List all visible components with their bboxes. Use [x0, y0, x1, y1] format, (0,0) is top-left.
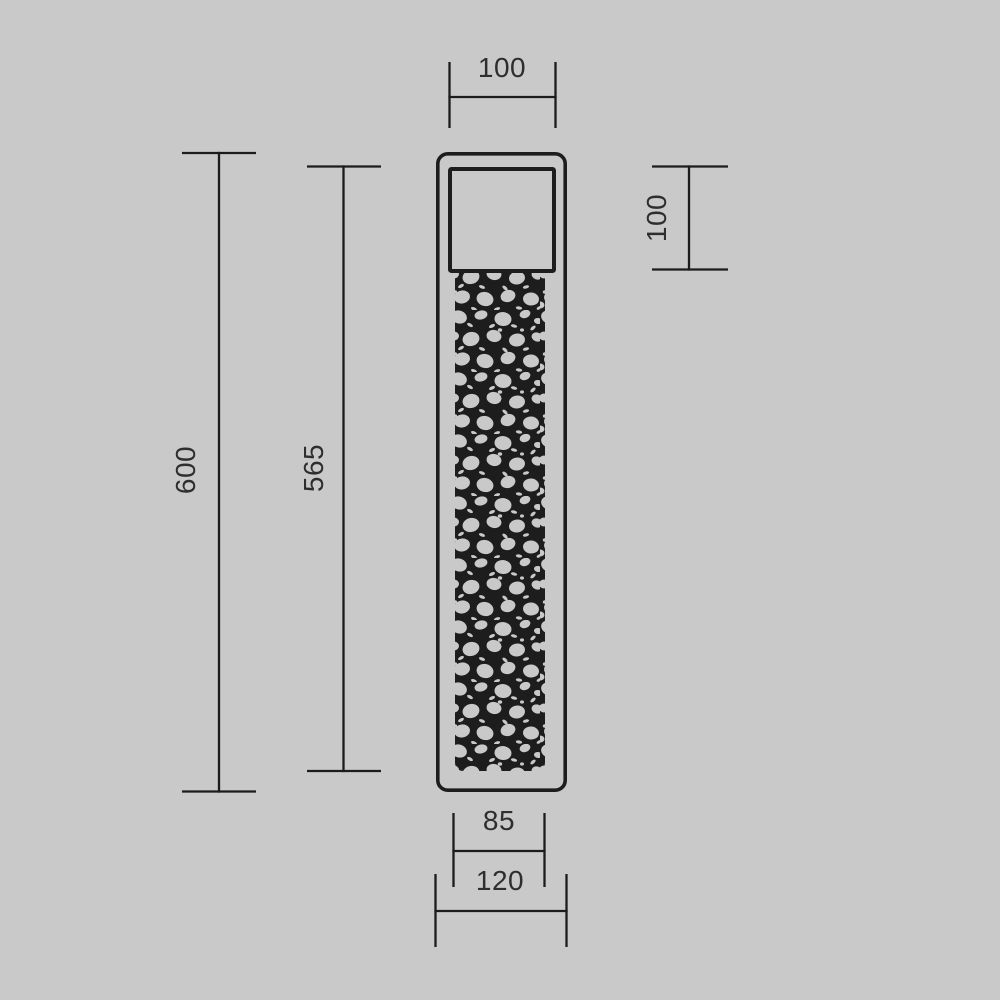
dim-label-inner-height: 565 [300, 444, 328, 492]
dim-label-body-width: 85 [483, 807, 515, 835]
fixture-drawing [0, 0, 1000, 1000]
dim-label-head-height: 100 [643, 194, 671, 242]
dim-label-top-width: 100 [478, 54, 526, 82]
dim-label-base-width: 120 [476, 867, 524, 895]
dim-label-overall-height: 600 [172, 446, 200, 494]
dimension-drawing-page: 100 100 600 565 85 120 [0, 0, 1000, 1000]
fixture-perforated-panel [455, 273, 545, 771]
fixture [438, 154, 565, 790]
fixture-head-panel [450, 169, 554, 271]
